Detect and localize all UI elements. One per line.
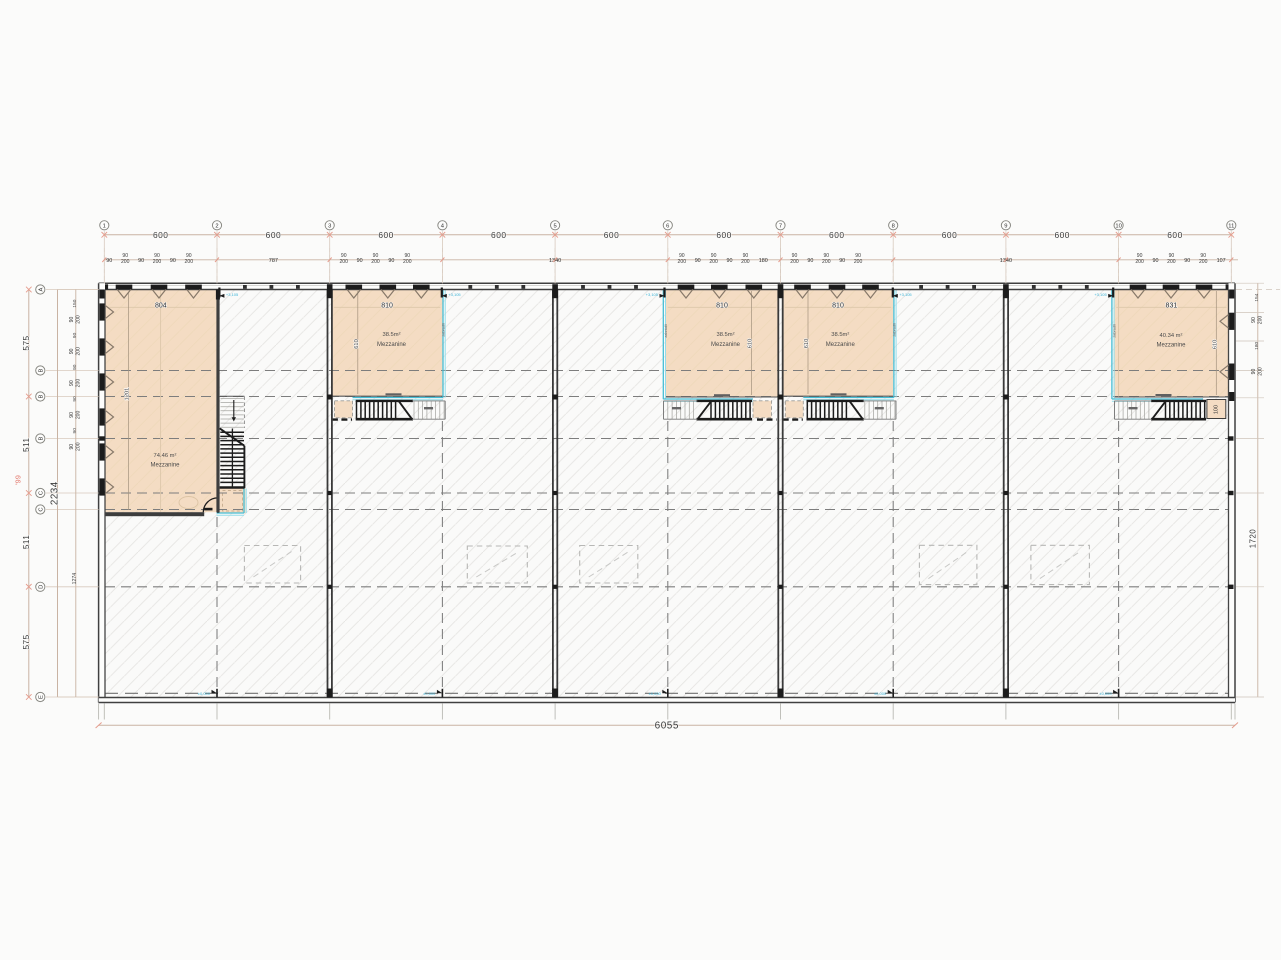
svg-text:zabradli: zabradli — [893, 323, 897, 336]
svg-text:90: 90 — [69, 412, 75, 418]
svg-text:90: 90 — [1169, 253, 1175, 259]
svg-text:Mezzanine: Mezzanine — [150, 463, 180, 469]
svg-text:90: 90 — [69, 317, 75, 323]
svg-text:74.46 m²: 74.46 m² — [154, 453, 177, 459]
svg-text:575: 575 — [22, 634, 31, 649]
svg-text:810: 810 — [716, 302, 728, 309]
svg-text:1201: 1201 — [125, 388, 131, 401]
svg-text:±0,000: ±0,000 — [874, 691, 887, 696]
svg-text:6: 6 — [666, 223, 669, 229]
svg-text:200: 200 — [1257, 316, 1263, 325]
svg-text:610: 610 — [354, 339, 360, 349]
svg-text:610: 610 — [748, 339, 754, 349]
svg-text:1340: 1340 — [1000, 258, 1012, 264]
svg-text:Mezzanine: Mezzanine — [711, 342, 741, 348]
svg-text:610: 610 — [804, 339, 810, 349]
svg-text:±0,000: ±0,000 — [423, 691, 436, 696]
svg-text:180: 180 — [1254, 341, 1260, 349]
svg-text:Mezzanine: Mezzanine — [377, 342, 407, 348]
svg-text:90: 90 — [1251, 317, 1257, 323]
svg-text:40.34 m²: 40.34 m² — [1160, 333, 1183, 339]
svg-text:200: 200 — [75, 410, 81, 419]
svg-text:200: 200 — [371, 259, 380, 265]
svg-text:Mezzanine: Mezzanine — [826, 342, 856, 348]
svg-text:200: 200 — [1135, 259, 1144, 265]
svg-text:90: 90 — [855, 253, 861, 259]
svg-text:90: 90 — [72, 428, 78, 434]
svg-text:810: 810 — [832, 302, 844, 309]
svg-text:+3,105: +3,105 — [1094, 292, 1107, 297]
svg-text:787: 787 — [269, 258, 278, 264]
svg-text:90: 90 — [154, 253, 160, 259]
svg-text:90: 90 — [711, 253, 717, 259]
svg-text:9: 9 — [1004, 223, 1007, 229]
svg-text:200: 200 — [403, 259, 412, 265]
svg-text:zabradli: zabradli — [442, 323, 446, 336]
svg-text:90: 90 — [69, 380, 75, 386]
svg-text:610: 610 — [1212, 340, 1218, 350]
svg-text:200: 200 — [1167, 259, 1176, 265]
svg-text:+3,105: +3,105 — [646, 292, 659, 297]
svg-text:10: 10 — [1115, 223, 1121, 229]
svg-text:90: 90 — [695, 258, 701, 264]
svg-text:200: 200 — [790, 259, 799, 265]
svg-text:600: 600 — [829, 230, 844, 240]
svg-text:200: 200 — [75, 379, 81, 388]
svg-text:600: 600 — [942, 230, 957, 240]
svg-text:600: 600 — [716, 230, 731, 240]
svg-text:38.5m²: 38.5m² — [716, 332, 734, 338]
svg-text:8: 8 — [892, 223, 895, 229]
svg-text:200: 200 — [121, 259, 130, 265]
svg-text:zabradli: zabradli — [1112, 324, 1116, 337]
svg-text:1720: 1720 — [1249, 529, 1258, 549]
svg-text:90: 90 — [170, 258, 176, 264]
svg-text:600: 600 — [491, 230, 506, 240]
svg-text:200: 200 — [185, 259, 194, 265]
svg-text:90: 90 — [1137, 253, 1143, 259]
svg-text:180: 180 — [759, 258, 768, 264]
svg-text:90: 90 — [388, 258, 394, 264]
svg-text:600: 600 — [1054, 230, 1069, 240]
svg-text:511: 511 — [22, 535, 31, 550]
svg-text:38.5m²: 38.5m² — [382, 332, 400, 338]
svg-text:90: 90 — [357, 258, 363, 264]
svg-text:±0,000: ±0,000 — [649, 691, 662, 696]
svg-text:±0,000: ±0,000 — [198, 691, 211, 696]
svg-text:90: 90 — [373, 253, 379, 259]
svg-text:600: 600 — [153, 230, 168, 240]
svg-text:B: B — [38, 394, 44, 398]
svg-text:11: 11 — [1228, 223, 1234, 229]
svg-text:90: 90 — [1153, 258, 1159, 264]
svg-text:+3,105: +3,105 — [899, 292, 912, 297]
svg-text:600: 600 — [266, 230, 281, 240]
svg-text:200: 200 — [854, 259, 863, 265]
svg-text:5: 5 — [553, 223, 556, 229]
svg-text:100: 100 — [1213, 405, 1219, 414]
svg-text:1274: 1274 — [72, 573, 78, 585]
svg-text:90: 90 — [341, 253, 347, 259]
svg-text:+3,105: +3,105 — [448, 292, 461, 297]
svg-text:1340: 1340 — [549, 258, 561, 264]
svg-text:90: 90 — [1200, 253, 1206, 259]
svg-text:38.5m²: 38.5m² — [831, 332, 849, 338]
svg-text:600: 600 — [604, 230, 619, 240]
svg-text:107: 107 — [1217, 258, 1226, 264]
svg-text:200: 200 — [153, 259, 162, 265]
svg-text:90: 90 — [792, 253, 798, 259]
svg-text:90: 90 — [72, 332, 78, 338]
svg-text:'99: '99 — [14, 475, 23, 485]
svg-text:90: 90 — [727, 258, 733, 264]
svg-text:A: A — [38, 287, 44, 291]
svg-text:C: C — [38, 491, 44, 495]
svg-text:831: 831 — [1166, 302, 1178, 309]
svg-text:90: 90 — [839, 258, 845, 264]
svg-text:90: 90 — [679, 253, 685, 259]
svg-text:200: 200 — [75, 347, 81, 356]
svg-text:1: 1 — [103, 223, 106, 229]
svg-text:E: E — [38, 695, 44, 699]
svg-text:90: 90 — [1251, 369, 1257, 375]
svg-text:90: 90 — [69, 348, 75, 354]
svg-text:B: B — [38, 368, 44, 372]
svg-text:90: 90 — [823, 253, 829, 259]
svg-text:3: 3 — [328, 223, 331, 229]
svg-text:90: 90 — [69, 444, 75, 450]
svg-text:90: 90 — [743, 253, 749, 259]
svg-text:200: 200 — [678, 259, 687, 265]
svg-text:90: 90 — [138, 258, 144, 264]
svg-text:2234: 2234 — [50, 481, 61, 505]
svg-text:804: 804 — [155, 302, 167, 309]
svg-text:200: 200 — [741, 259, 750, 265]
svg-text:575: 575 — [22, 335, 31, 350]
svg-text:90: 90 — [404, 253, 410, 259]
svg-text:B: B — [38, 436, 44, 440]
svg-text:600: 600 — [1167, 230, 1182, 240]
svg-text:90: 90 — [106, 258, 112, 264]
svg-text:200: 200 — [339, 259, 348, 265]
svg-text:200: 200 — [1257, 367, 1263, 376]
svg-text:810: 810 — [381, 302, 393, 309]
svg-text:6055: 6055 — [655, 721, 679, 732]
svg-text:90: 90 — [1184, 258, 1190, 264]
svg-text:150: 150 — [72, 299, 78, 307]
svg-text:90: 90 — [72, 364, 78, 370]
svg-text:±0,000: ±0,000 — [1099, 691, 1112, 696]
svg-text:90: 90 — [186, 253, 192, 259]
svg-text:600: 600 — [378, 230, 393, 240]
svg-text:Mezzanine: Mezzanine — [1156, 343, 1186, 349]
svg-text:200: 200 — [75, 315, 81, 324]
svg-text:7: 7 — [779, 223, 782, 229]
svg-text:C: C — [38, 507, 44, 511]
svg-text:D: D — [38, 585, 44, 589]
svg-text:200: 200 — [1199, 259, 1208, 265]
svg-text:200: 200 — [75, 442, 81, 451]
svg-text:2: 2 — [215, 223, 218, 229]
svg-text:90: 90 — [807, 258, 813, 264]
svg-text:200: 200 — [709, 259, 718, 265]
svg-text:154: 154 — [1254, 293, 1260, 301]
svg-text:+3,105: +3,105 — [226, 292, 239, 297]
svg-text:511: 511 — [22, 437, 31, 452]
svg-text:zabradli: zabradli — [664, 324, 668, 337]
svg-text:90: 90 — [122, 253, 128, 259]
svg-text:90: 90 — [72, 396, 78, 402]
svg-text:200: 200 — [822, 259, 831, 265]
